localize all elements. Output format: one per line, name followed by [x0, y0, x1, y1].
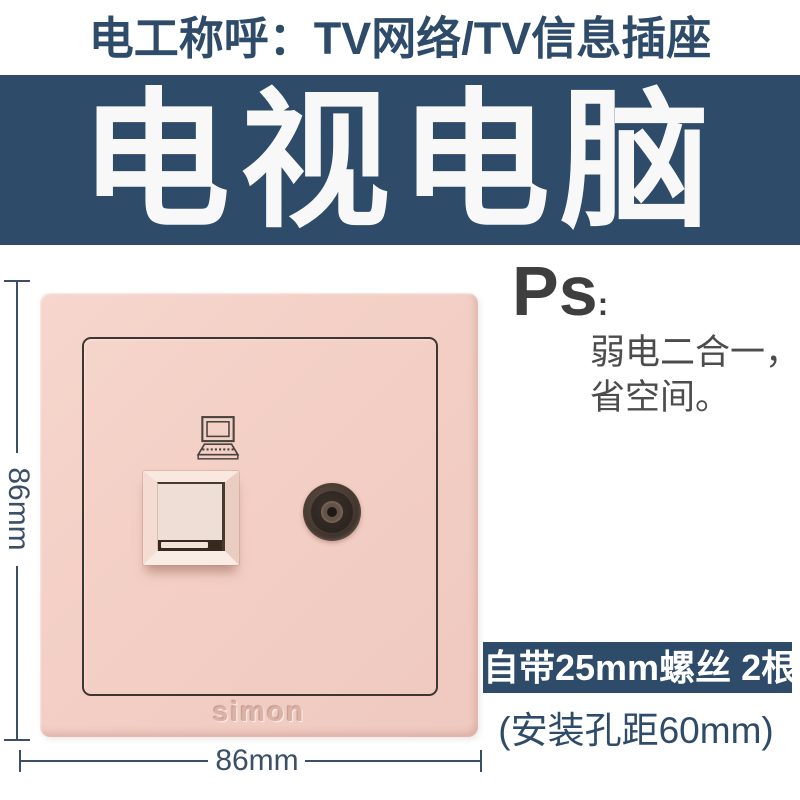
- ps-label: Ps: [512, 252, 598, 330]
- ps-note-line2: 省空间。: [590, 375, 800, 420]
- laptop-icon: [194, 415, 242, 463]
- coax-center-hole: [327, 507, 337, 517]
- dim-width-line-right: [305, 760, 482, 762]
- hole-spacing-note: (安装孔距60mm): [480, 700, 792, 754]
- dim-height-label: 86mm: [1, 467, 35, 550]
- dim-height-cap-bottom: [4, 739, 30, 741]
- ps-colon: :: [598, 286, 609, 322]
- socket-plate: simon: [40, 293, 478, 737]
- hero-banner: 电视电脑: [0, 75, 800, 245]
- screws-badge: 自带25mm螺丝 2根: [483, 642, 792, 693]
- rj45-port-recess: [157, 482, 225, 551]
- dim-width-label: 86mm: [208, 744, 306, 778]
- tv-coax-socket: [303, 483, 361, 541]
- hero-banner-text: 电视电脑: [0, 75, 800, 245]
- dim-height-line-upper: [16, 281, 18, 453]
- brand-logo: simon: [213, 696, 305, 728]
- rj45-clip-slot: [158, 540, 222, 551]
- dim-width-line-left: [20, 760, 208, 762]
- ps-heading: Ps:: [512, 256, 608, 326]
- dim-height-line-lower: [16, 566, 18, 740]
- rj45-clip-flap: [161, 542, 208, 548]
- ps-note: 弱电二合一， 省空间。: [590, 330, 800, 420]
- page-title: 电工称呼：TV网络/TV信息插座: [0, 0, 800, 75]
- network-jack: [143, 471, 239, 565]
- ps-note-line1: 弱电二合一，: [590, 330, 800, 375]
- product-ad-page: 电工称呼：TV网络/TV信息插座 电视电脑 simon: [0, 0, 800, 800]
- plate-inner-panel: [82, 337, 438, 696]
